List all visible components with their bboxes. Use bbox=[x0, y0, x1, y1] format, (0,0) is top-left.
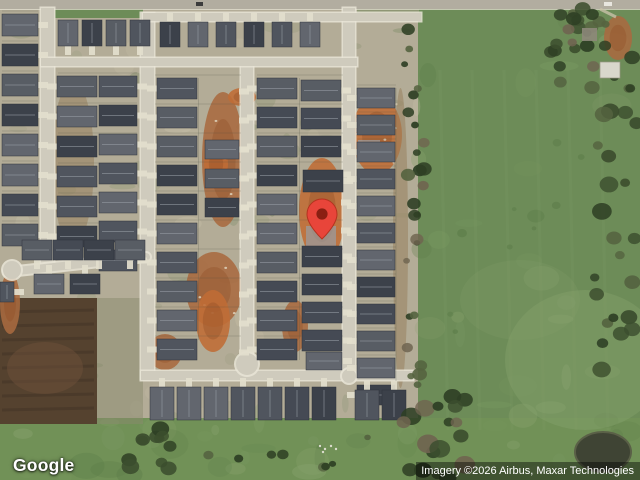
attribution-bar: Imagery ©2026 Airbus, Maxar Technologies bbox=[416, 462, 640, 480]
satellite-imagery[interactable] bbox=[0, 0, 640, 480]
map-viewport[interactable]: Google Imagery ©2026 Airbus, Maxar Techn… bbox=[0, 0, 640, 480]
attribution-text: Imagery ©2026 Airbus, Maxar Technologies bbox=[421, 465, 634, 477]
google-logo[interactable]: Google bbox=[13, 455, 74, 476]
map-pin[interactable] bbox=[306, 198, 338, 240]
pin-center-dot bbox=[316, 208, 327, 219]
